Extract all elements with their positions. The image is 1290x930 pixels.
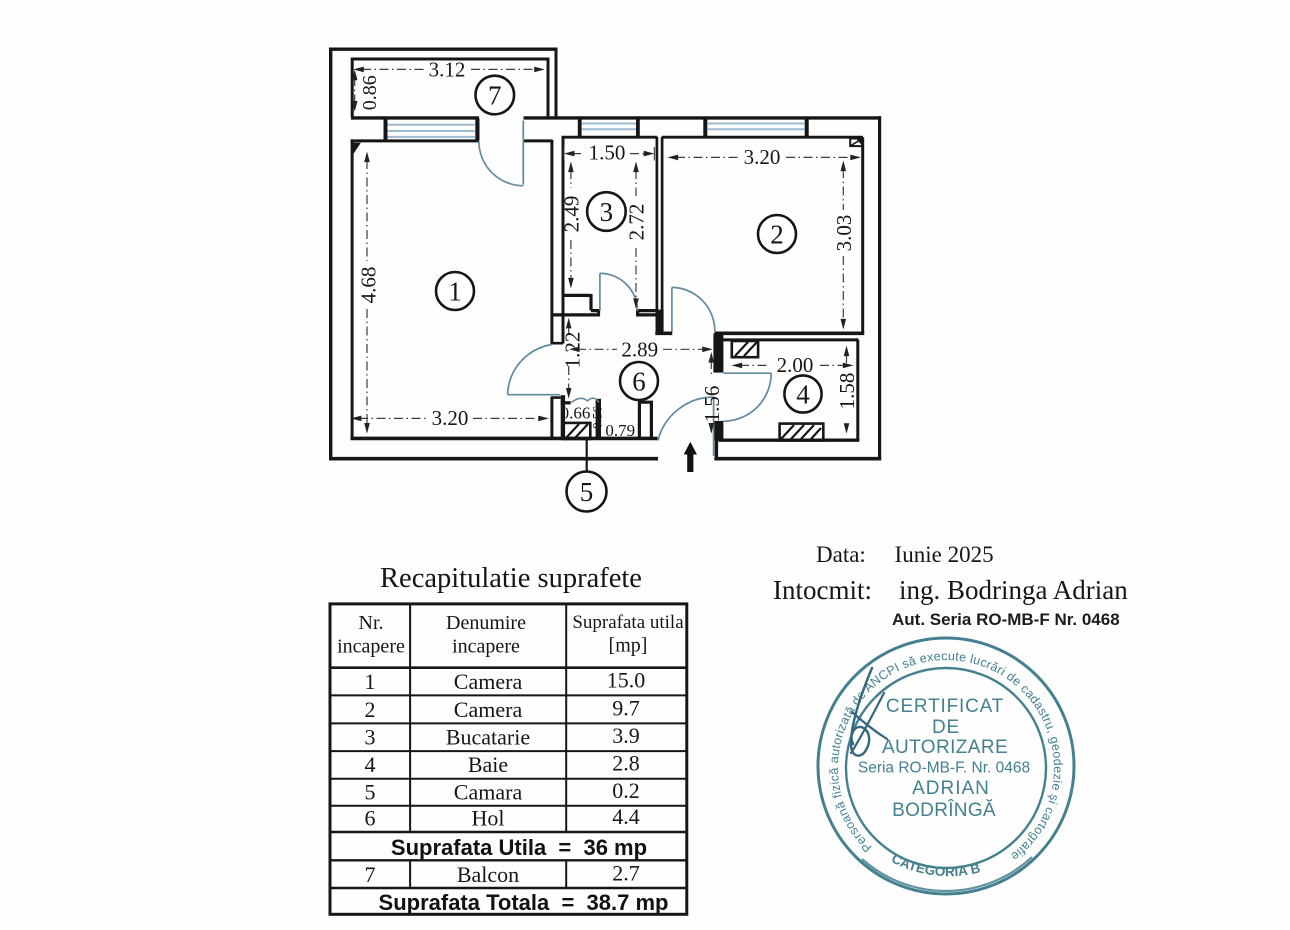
svg-text:1.56: 1.56 bbox=[700, 386, 724, 423]
svg-text:2: 2 bbox=[770, 220, 784, 250]
svg-text:1: 1 bbox=[448, 277, 462, 307]
svg-text:2.49: 2.49 bbox=[560, 196, 584, 233]
svg-text:15.0: 15.0 bbox=[607, 668, 646, 693]
svg-text:2: 2 bbox=[365, 697, 376, 722]
svg-text:CERTIFICAT: CERTIFICAT bbox=[886, 696, 1004, 717]
svg-text:Hol: Hol bbox=[472, 806, 505, 831]
svg-text:Camara: Camara bbox=[454, 779, 523, 804]
svg-text:Seria RO-MB-F. Nr. 0468: Seria RO-MB-F. Nr. 0468 bbox=[858, 760, 1030, 777]
svg-text:AUTORIZARE: AUTORIZARE bbox=[882, 737, 1008, 758]
svg-text:2.00: 2.00 bbox=[777, 353, 814, 377]
svg-text:5: 5 bbox=[365, 779, 376, 804]
svg-text:3: 3 bbox=[600, 197, 614, 227]
svg-text:Baie: Baie bbox=[468, 752, 508, 777]
svg-text:Intocmit: ing. Bodringa Adr: Intocmit: ing. Bodringa Adrian bbox=[773, 575, 1128, 605]
svg-text:6: 6 bbox=[632, 367, 646, 397]
svg-text:3.20: 3.20 bbox=[432, 406, 469, 430]
svg-text:6: 6 bbox=[365, 806, 376, 831]
svg-text:3.03: 3.03 bbox=[832, 215, 856, 252]
svg-text:0.86: 0.86 bbox=[359, 75, 381, 110]
svg-text:2.7: 2.7 bbox=[612, 860, 640, 885]
svg-text:9.7: 9.7 bbox=[612, 695, 640, 720]
svg-text:Camera: Camera bbox=[454, 697, 523, 722]
svg-text:1.50: 1.50 bbox=[589, 141, 626, 165]
svg-text:Aut. Seria RO-MB-F Nr. 0468: Aut. Seria RO-MB-F Nr. 0468 bbox=[892, 610, 1120, 629]
svg-text:3.20: 3.20 bbox=[744, 145, 781, 169]
svg-text:0.79: 0.79 bbox=[605, 421, 635, 440]
svg-text:5: 5 bbox=[580, 477, 594, 507]
svg-text:Nr.: Nr. bbox=[359, 612, 384, 634]
svg-text:Balcon: Balcon bbox=[457, 862, 519, 887]
svg-text:ADRIAN: ADRIAN bbox=[912, 778, 990, 799]
svg-text:BODRÎNGĂ: BODRÎNGĂ bbox=[892, 799, 996, 821]
svg-text:0.56: 0.56 bbox=[590, 406, 605, 429]
svg-text:Camera: Camera bbox=[454, 669, 523, 694]
svg-text:4.68: 4.68 bbox=[357, 267, 381, 304]
svg-text:4: 4 bbox=[796, 380, 810, 410]
svg-text:1: 1 bbox=[365, 669, 376, 694]
svg-text:DE: DE bbox=[932, 717, 960, 738]
svg-text:0.2: 0.2 bbox=[612, 778, 640, 803]
svg-text:incapere: incapere bbox=[452, 636, 520, 658]
svg-text:3.12: 3.12 bbox=[429, 58, 466, 82]
svg-text:1.58: 1.58 bbox=[835, 373, 859, 410]
svg-text:7: 7 bbox=[365, 862, 376, 887]
svg-text:Suprafata utila: Suprafata utila bbox=[572, 612, 684, 633]
svg-text:Suprafata Totala = 38.7 mp: Suprafata Totala = 38.7 mp bbox=[379, 890, 669, 915]
svg-text:2.89: 2.89 bbox=[621, 337, 658, 361]
svg-text:incapere: incapere bbox=[337, 636, 405, 658]
svg-text:7: 7 bbox=[488, 81, 502, 111]
svg-text:Denumire: Denumire bbox=[446, 612, 526, 634]
svg-text:Bucatarie: Bucatarie bbox=[446, 725, 530, 750]
svg-text:4: 4 bbox=[365, 752, 376, 777]
svg-text:Data: Iunie 2025: Data: Iunie 2025 bbox=[816, 542, 994, 567]
svg-text:3.9: 3.9 bbox=[612, 723, 640, 748]
svg-text:[mp]: [mp] bbox=[609, 635, 648, 657]
svg-text:Suprafata Utila = 36 mp: Suprafata Utila = 36 mp bbox=[391, 835, 647, 860]
svg-text:4.4: 4.4 bbox=[612, 804, 640, 829]
svg-text:3: 3 bbox=[365, 725, 376, 750]
svg-text:2.72: 2.72 bbox=[625, 204, 649, 241]
svg-text:2.8: 2.8 bbox=[612, 751, 640, 776]
svg-text:0.66: 0.66 bbox=[561, 404, 591, 423]
svg-text:Recapitulatie suprafete: Recapitulatie suprafete bbox=[380, 563, 642, 594]
